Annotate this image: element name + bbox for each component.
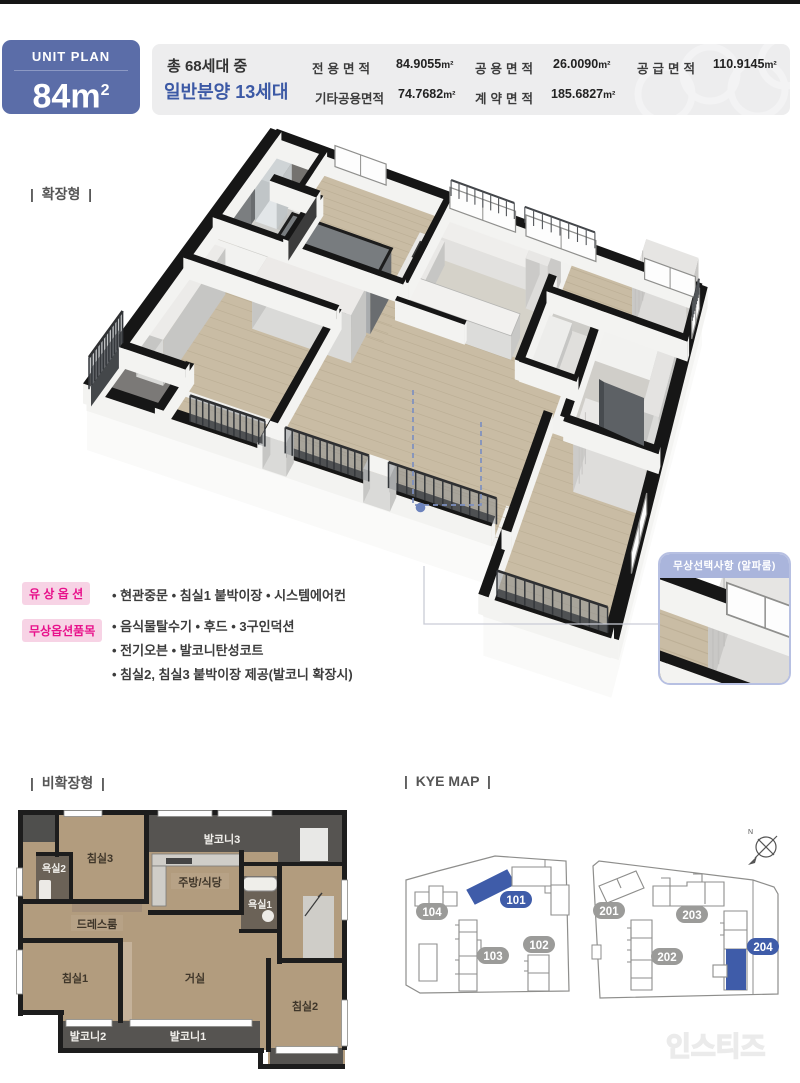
svg-text:101: 101 (506, 895, 526, 907)
svg-text:103: 103 (483, 951, 502, 963)
svg-text:드레스룸: 드레스룸 (77, 917, 117, 931)
svg-text:202: 202 (657, 952, 676, 964)
svg-text:침실1: 침실1 (62, 971, 88, 985)
svg-text:104: 104 (422, 907, 442, 919)
svg-text:발코니1: 발코니1 (170, 1029, 206, 1043)
svg-text:201: 201 (599, 906, 619, 918)
svg-text:침실2: 침실2 (292, 999, 318, 1013)
svg-text:욕실2: 욕실2 (42, 862, 66, 875)
svg-text:204: 204 (753, 942, 773, 954)
svg-text:102: 102 (529, 940, 548, 952)
svg-text:N: N (748, 829, 753, 836)
svg-text:발코니2: 발코니2 (70, 1029, 106, 1043)
svg-text:욕실1: 욕실1 (248, 898, 272, 911)
svg-text:침실3: 침실3 (87, 851, 113, 865)
svg-text:203: 203 (682, 910, 701, 922)
svg-text:거실: 거실 (185, 971, 205, 985)
svg-text:주방/식당: 주방/식당 (178, 875, 222, 889)
svg-text:발코니3: 발코니3 (204, 832, 240, 846)
